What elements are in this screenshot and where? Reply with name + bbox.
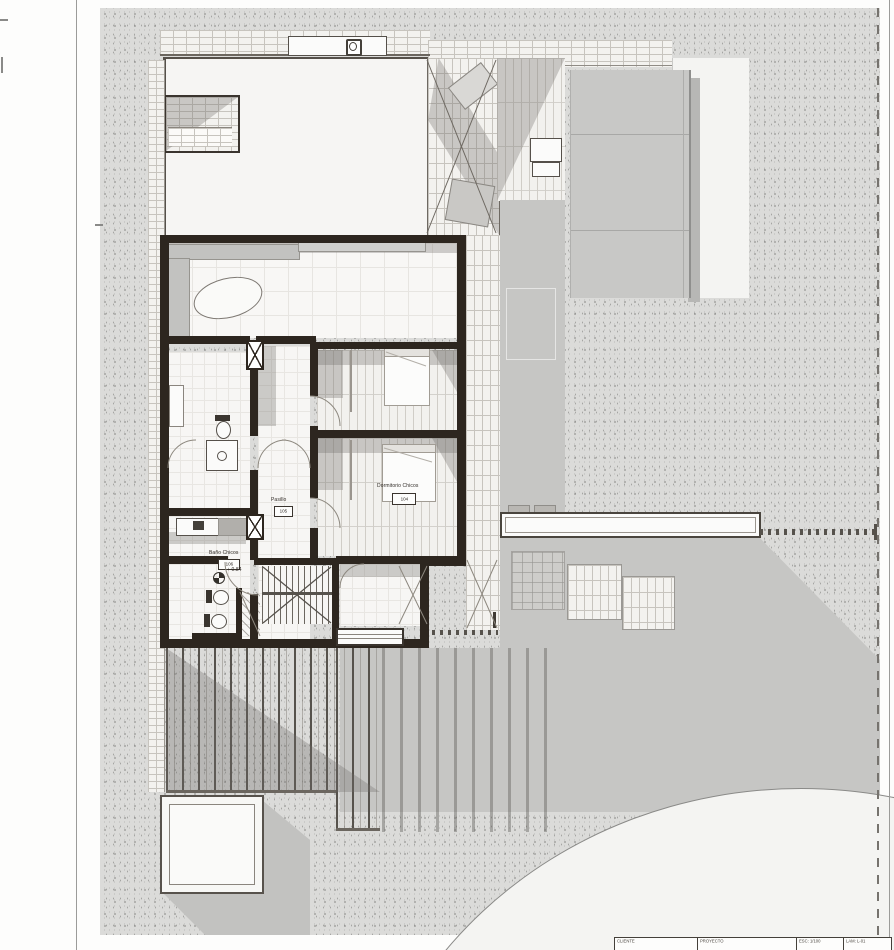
paver-brick <box>622 576 675 630</box>
deck-edge-line <box>336 828 380 831</box>
planter-square <box>160 795 264 894</box>
wall <box>310 430 466 438</box>
property-line-dashed <box>877 8 879 935</box>
roof-vent-box <box>288 36 387 56</box>
pergola-beam <box>500 512 761 538</box>
pergola-beam-shadows <box>382 648 560 832</box>
wall <box>310 349 318 396</box>
tall-unit <box>169 385 184 427</box>
closet-partition <box>350 440 352 500</box>
title-block-cell-escala: ESC: 1/100 <box>797 938 844 950</box>
roof-edge-line <box>683 70 684 298</box>
room-label-dormitorio: Dormitorio Chicos <box>377 483 418 489</box>
deck-shadow <box>497 58 565 201</box>
pergola-beams-long <box>336 648 380 830</box>
wall <box>250 594 258 640</box>
wall <box>336 556 466 564</box>
living-side-cabinet <box>168 258 190 344</box>
wall <box>160 508 258 516</box>
fence-dotted-line <box>432 630 498 635</box>
room-label-bano: Baño Chicos <box>209 550 238 556</box>
deck-edge-line <box>166 790 336 793</box>
ibeam-mark <box>493 612 496 628</box>
wall <box>250 470 258 508</box>
title-block-cell-lamina: LAM: L-01 <box>844 938 890 950</box>
stair-landing-line <box>262 592 332 595</box>
deck-window <box>532 162 560 177</box>
window <box>336 628 404 646</box>
margin-tick <box>0 19 8 21</box>
level-marker-icon <box>213 572 225 584</box>
level-mark-text: + 0.84 <box>227 567 242 573</box>
room-number-pasillo: 105 <box>274 506 293 517</box>
bed <box>384 348 430 406</box>
void-object <box>445 178 496 227</box>
margin-tick <box>1 57 3 73</box>
roof-seam <box>571 230 689 231</box>
wall <box>256 336 316 344</box>
wall <box>160 235 169 648</box>
roof-opening <box>506 288 556 360</box>
lower-roof-block <box>500 200 565 540</box>
wall <box>310 342 466 349</box>
room-shadow <box>317 438 343 490</box>
roof-seam <box>571 134 689 135</box>
vent-icon <box>346 39 362 56</box>
kitchen-sink <box>193 521 204 530</box>
wall <box>310 528 318 558</box>
deck-strip <box>497 58 565 201</box>
title-block: CLIENTE PROYECTO ESC: 1/100 LAM: L-01 <box>614 937 892 950</box>
room-shadow <box>340 564 424 577</box>
room-label-pasillo: Pasillo <box>271 497 286 503</box>
skylight-inner <box>168 127 232 146</box>
paver-grid <box>511 551 565 610</box>
title-block-cell-proyecto: PROYECTO <box>698 938 797 950</box>
sheet-border-right <box>889 0 890 950</box>
column-x <box>246 514 264 540</box>
closet-partition <box>350 350 352 412</box>
sheet-border-left <box>76 0 77 950</box>
wall <box>236 588 242 639</box>
floor-plan-sheet: Pasillo 105 Dormitorio Chicos 104 Baño C… <box>0 0 894 950</box>
paver-brick <box>567 564 622 620</box>
bidet-icon <box>211 614 227 629</box>
wall <box>254 558 338 565</box>
faucet-icon <box>217 451 227 461</box>
wall <box>160 235 466 243</box>
column-x <box>246 340 264 370</box>
wall <box>420 558 429 648</box>
wall <box>310 426 318 498</box>
fence-dotted-line <box>760 529 874 535</box>
roof-panel <box>570 70 691 298</box>
stair-run <box>262 566 332 624</box>
toilet-icon <box>213 590 229 605</box>
wall <box>192 633 238 639</box>
wall <box>160 336 250 344</box>
terrace-brick-strip <box>466 235 500 630</box>
wall <box>457 235 466 565</box>
toilet-tank <box>206 590 212 603</box>
room-shadow <box>317 350 343 398</box>
deck-window <box>530 138 562 162</box>
kitchen-floor <box>168 352 250 508</box>
toilet-icon <box>216 421 231 439</box>
bidet-tank <box>204 614 210 627</box>
title-block-cell-cliente: CLIENTE <box>615 938 698 950</box>
margin-tick <box>95 224 103 226</box>
skylight-box <box>164 95 240 153</box>
room-number-dormitorio: 104 <box>392 493 416 505</box>
